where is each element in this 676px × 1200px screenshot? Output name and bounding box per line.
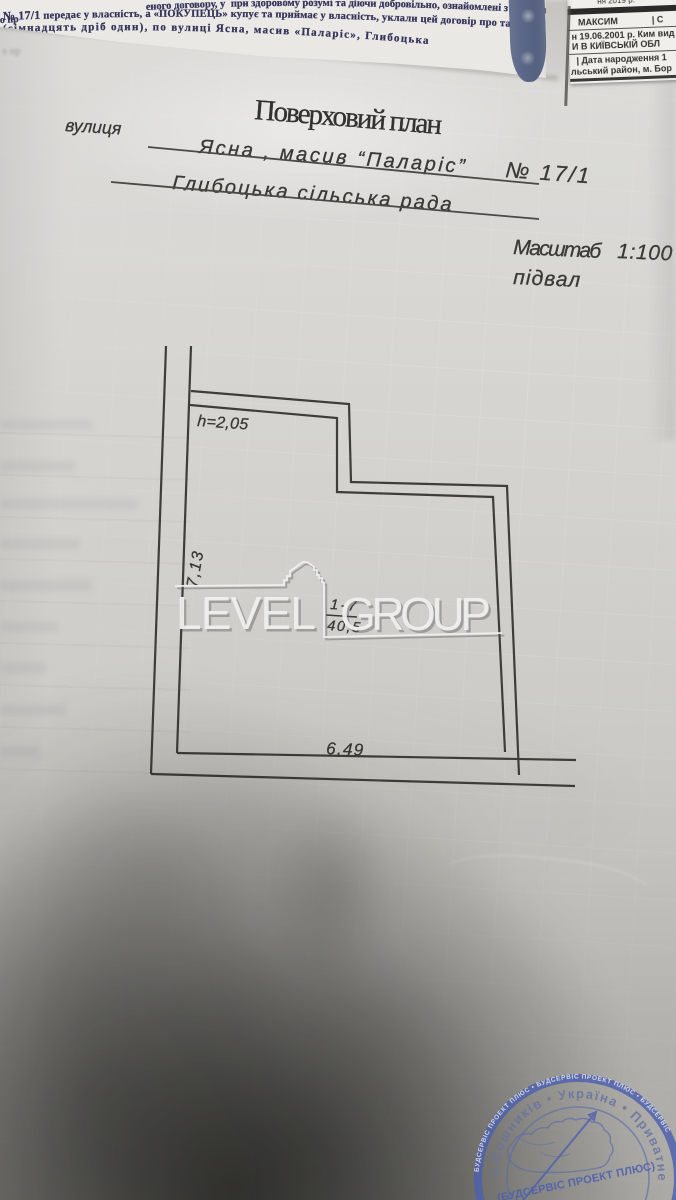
svg-text:(БУДСЕРВІС ПРОЕКТ ПЛЮС): (БУДСЕРВІС ПРОЕКТ ПЛЮС) <box>496 1160 656 1200</box>
svg-text:о пр: о пр <box>0 14 19 26</box>
